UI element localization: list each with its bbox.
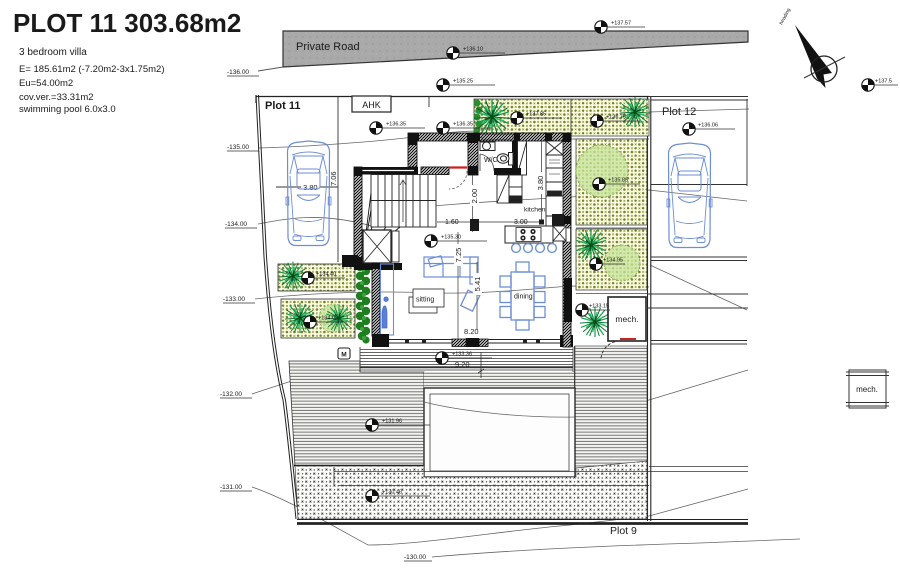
- svg-text:3 bedroom villa: 3 bedroom villa: [19, 47, 87, 58]
- svg-text:Private Road: Private Road: [296, 41, 360, 53]
- svg-text:+135.30: +135.30: [441, 235, 461, 241]
- svg-text:+136.35: +136.35: [453, 122, 473, 128]
- svg-text:Plot 9: Plot 9: [610, 525, 637, 537]
- svg-text:-131.00: -131.00: [220, 484, 242, 491]
- svg-text:3.80: 3.80: [303, 183, 318, 192]
- svg-text:W/C: W/C: [484, 157, 498, 164]
- svg-text:+135.85: +135.85: [608, 178, 628, 184]
- svg-text:Plot 12: Plot 12: [662, 106, 696, 118]
- svg-text:cov.ver.=33.31m2: cov.ver.=33.31m2: [19, 92, 94, 103]
- svg-text:2.00: 2.00: [470, 189, 479, 204]
- svg-text:sitting: sitting: [416, 297, 434, 304]
- svg-text:-133.00: -133.00: [223, 296, 245, 303]
- svg-text:+130.46: +130.46: [382, 490, 402, 496]
- svg-text:-132.00: -132.00: [220, 391, 242, 398]
- svg-text:1.60: 1.60: [445, 219, 459, 226]
- svg-text:+137.5: +137.5: [875, 79, 892, 85]
- svg-text:+134.40: +134.40: [316, 272, 336, 278]
- svg-text:-130.00: -130.00: [404, 554, 426, 561]
- svg-text:+136.06: +136.06: [698, 123, 718, 129]
- svg-text:mech.: mech.: [615, 314, 638, 324]
- svg-text:+136.10: +136.10: [463, 47, 483, 53]
- svg-text:3.80: 3.80: [536, 176, 545, 191]
- svg-text:mech.: mech.: [856, 385, 878, 394]
- svg-text:+133.15: +133.15: [589, 304, 609, 310]
- svg-text:+137.85: +137.85: [526, 112, 546, 118]
- svg-text:-135.00: -135.00: [227, 144, 249, 151]
- svg-text:9.20: 9.20: [455, 360, 470, 369]
- svg-text:+137.57: +137.57: [611, 21, 631, 27]
- svg-text:+131.96: +131.96: [382, 419, 402, 425]
- svg-text:+134.95: +134.95: [603, 258, 623, 264]
- svg-text:swimming pool 6.0x3.0: swimming pool 6.0x3.0: [19, 104, 116, 115]
- svg-text:dining: dining: [514, 294, 533, 301]
- svg-text:Plot 11: Plot 11: [265, 100, 300, 112]
- svg-text:AHK: AHK: [362, 100, 381, 110]
- svg-text:+136.75: +136.75: [606, 115, 626, 121]
- svg-text:-134.00: -134.00: [225, 221, 247, 228]
- svg-text:-136.00: -136.00: [227, 69, 249, 76]
- svg-text:7.06: 7.06: [329, 171, 338, 186]
- svg-text:E= 185.61m2 (-7.20m2-3x1.75m2): E= 185.61m2 (-7.20m2-3x1.75m2): [19, 64, 164, 75]
- svg-text:+135.25: +135.25: [453, 79, 473, 85]
- svg-text:5.41: 5.41: [473, 277, 482, 292]
- svg-text:PLOT 11 303.68m2: PLOT 11 303.68m2: [13, 8, 241, 38]
- svg-text:Eu=54.00m2: Eu=54.00m2: [19, 78, 73, 89]
- svg-text:M: M: [341, 352, 346, 359]
- svg-text:+136.35: +136.35: [386, 122, 406, 128]
- svg-text:3.00: 3.00: [514, 219, 528, 226]
- svg-text:+134.05: +134.05: [318, 316, 338, 322]
- svg-text:8.20: 8.20: [464, 327, 479, 336]
- svg-text:+133.36: +133.36: [452, 352, 472, 358]
- svg-text:kitchen: kitchen: [524, 207, 546, 214]
- svg-text:7.25: 7.25: [454, 248, 463, 263]
